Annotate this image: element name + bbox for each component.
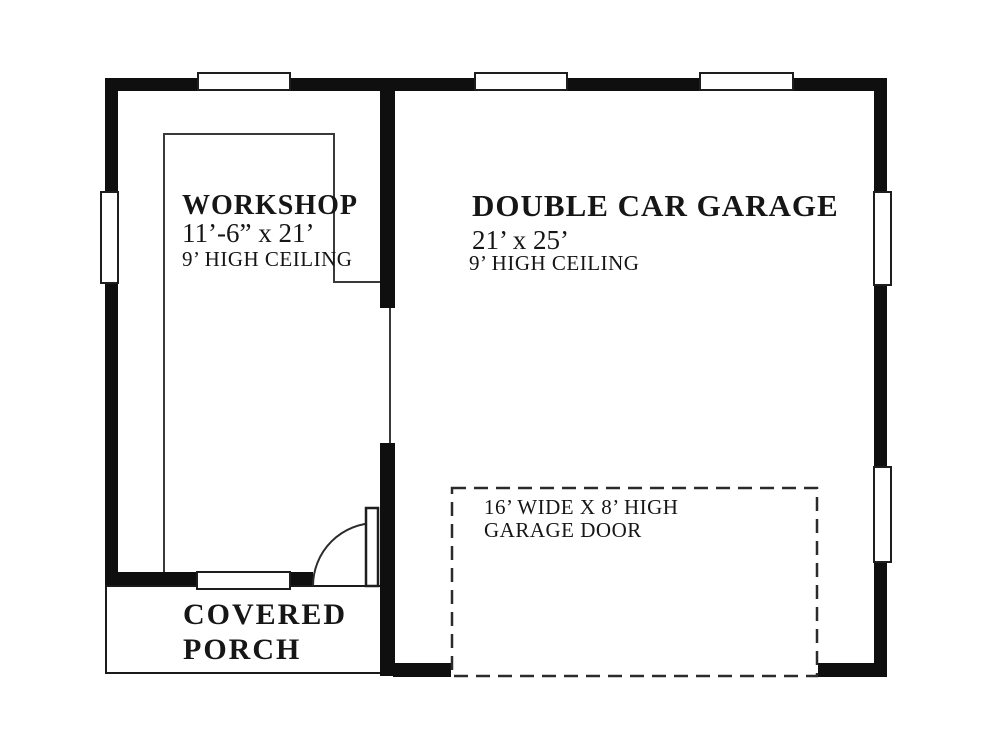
wall-interior-lower [380,443,395,676]
garage-name-label: DOUBLE CAR GARAGE [472,190,839,223]
porch-label-line2: PORCH [183,634,301,666]
wall-right [874,78,887,677]
workshop-ceiling-label: 9’ HIGH CEILING [182,248,352,270]
wall-left [105,78,118,585]
garage-door-size-label: 16’ WIDE X 8’ HIGH [484,496,678,518]
window-right-garage-upper [873,191,892,286]
interior-opening-line [389,308,391,443]
window-bottom-workshop [196,571,291,590]
workshop-outline-top [163,133,335,135]
wall-garage-bottom-left [393,663,451,677]
porch-label-line1: COVERED [183,599,347,631]
workshop-name-label: WORKSHOP [182,191,358,220]
window-right-garage-lower [873,466,892,563]
window-left-workshop [100,191,119,284]
workshop-outline-left [163,133,165,572]
workshop-outline-jog [333,281,381,283]
workshop-dimensions-label: 11’-6” x 21’ [182,219,314,247]
window-top-workshop [197,72,291,91]
door-leaf [366,508,378,586]
garage-ceiling-label: 9’ HIGH CEILING [469,252,639,274]
wall-interior-upper [380,78,395,308]
garage-door-name-label: GARAGE DOOR [484,519,642,541]
door-swing-arc [313,523,376,586]
wall-garage-bottom-right [818,663,876,677]
floor-plan: WORKSHOP 11’-6” x 21’ 9’ HIGH CEILING DO… [0,0,1000,750]
window-top-garage-1 [474,72,568,91]
window-top-garage-2 [699,72,794,91]
